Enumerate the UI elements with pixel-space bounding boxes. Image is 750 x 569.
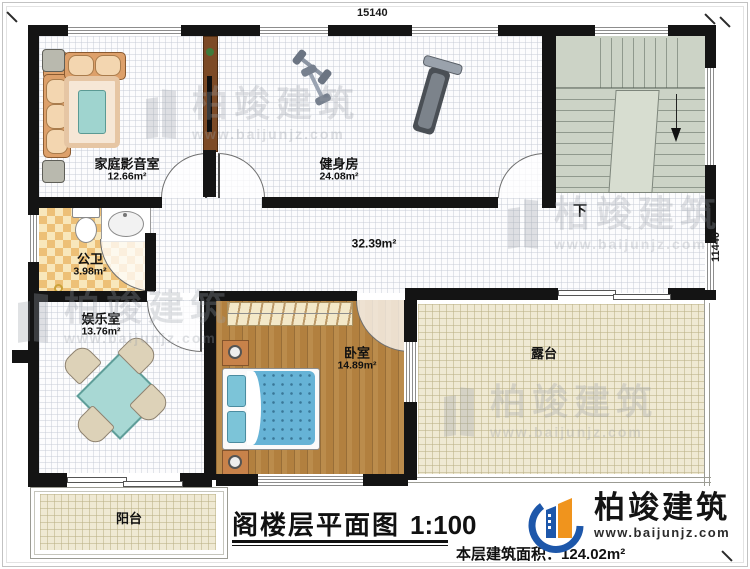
lamp-icon (228, 455, 242, 469)
plan-scale: 1:100 (410, 510, 477, 540)
speaker-icon (42, 49, 65, 72)
stair-direction-line (676, 94, 677, 130)
window (705, 68, 716, 165)
title-underline (232, 540, 448, 543)
terrace-railing (709, 303, 710, 486)
window (412, 25, 498, 36)
room-label-terrace: 露台 (531, 347, 557, 361)
sliding-door (67, 477, 127, 483)
stair-treads-upper (600, 38, 678, 88)
room-label-bathroom: 公卫3.98m² (73, 253, 106, 278)
pillow (227, 411, 246, 443)
sliding-door (558, 290, 616, 296)
wall (28, 473, 67, 487)
pillow (227, 375, 246, 407)
floor-plan-canvas: 家庭影音室12.66m² 健身房24.08m² 公卫3.98m² 娱乐室13.7… (0, 0, 750, 569)
terrace-railing (406, 477, 711, 478)
room-label-balcony: 阳台 (116, 512, 142, 526)
floor-terrace (418, 304, 704, 474)
room-label-bedroom: 卧室14.89m² (337, 347, 376, 372)
wall (199, 291, 357, 301)
tv-icon (207, 76, 212, 132)
room-label-play-room: 娱乐室13.76m² (81, 313, 120, 338)
wall (542, 36, 556, 197)
nightstand (222, 340, 249, 366)
brand-logo-icon (528, 492, 588, 556)
window (68, 25, 181, 36)
plant-icon (206, 48, 214, 56)
dimension-right: 11440 (710, 232, 722, 262)
terrace-railing (704, 300, 705, 486)
wall (28, 291, 147, 302)
wall (404, 300, 417, 342)
room-label-gym: 健身房24.08m² (319, 158, 358, 183)
nightstand (222, 450, 249, 476)
window (595, 25, 668, 36)
plan-title: 阁楼层平面图1:100 (232, 505, 477, 542)
dimension-top: 15140 (357, 7, 388, 19)
title-underline (232, 545, 448, 546)
wall (145, 233, 156, 291)
wall (39, 197, 162, 208)
toilet-icon (75, 217, 97, 243)
terrace-railing (408, 482, 711, 483)
window (404, 342, 417, 402)
wall (262, 197, 498, 208)
stair-landing-line (556, 87, 705, 88)
window (28, 215, 39, 262)
room-label-hall-area: 32.39m² (352, 238, 397, 251)
wall (204, 300, 216, 480)
brand-logo: 柏竣建筑 www.baijunjz.com (528, 492, 730, 556)
brand-website: www.baijunjz.com (594, 525, 730, 540)
lamp-icon (228, 345, 242, 359)
speaker-icon (42, 160, 65, 183)
wall (180, 473, 212, 487)
sofa-cushion (95, 55, 121, 76)
stairs-down-label: 下 (573, 204, 587, 219)
brand-name: 柏竣建筑 (594, 492, 730, 523)
stair-down-arrow-icon (671, 128, 681, 142)
wall (405, 288, 558, 300)
bed (222, 368, 320, 450)
sofa-cushion (68, 55, 94, 76)
room-label-theater: 家庭影音室12.66m² (94, 158, 159, 183)
wall (216, 474, 258, 486)
stair-void (608, 90, 659, 193)
sliding-door (123, 481, 183, 487)
wall (542, 197, 556, 208)
wardrobe (227, 302, 353, 326)
wall (12, 350, 39, 363)
window (258, 474, 363, 486)
wall (404, 402, 417, 480)
table-set (60, 336, 176, 452)
coffee-table (78, 90, 106, 134)
faucet-icon (123, 213, 127, 217)
window (260, 25, 328, 36)
sliding-door (613, 294, 671, 300)
wall (363, 474, 408, 486)
wall (203, 150, 216, 197)
